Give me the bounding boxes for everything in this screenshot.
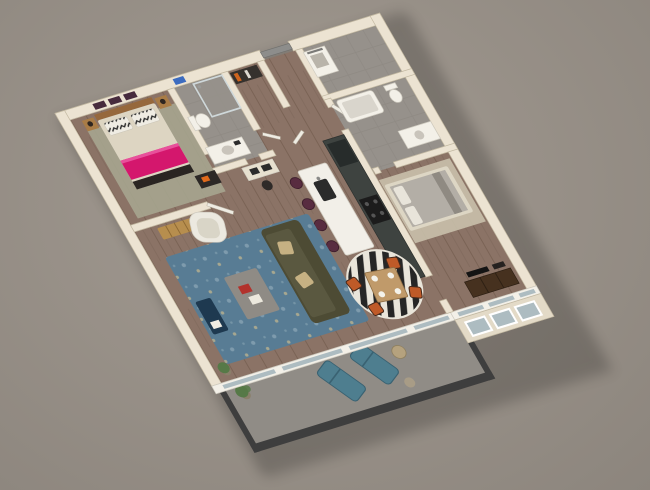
dining-chair <box>409 286 423 298</box>
floor-plan-render <box>0 0 650 490</box>
floor-plan-stage <box>0 0 650 490</box>
